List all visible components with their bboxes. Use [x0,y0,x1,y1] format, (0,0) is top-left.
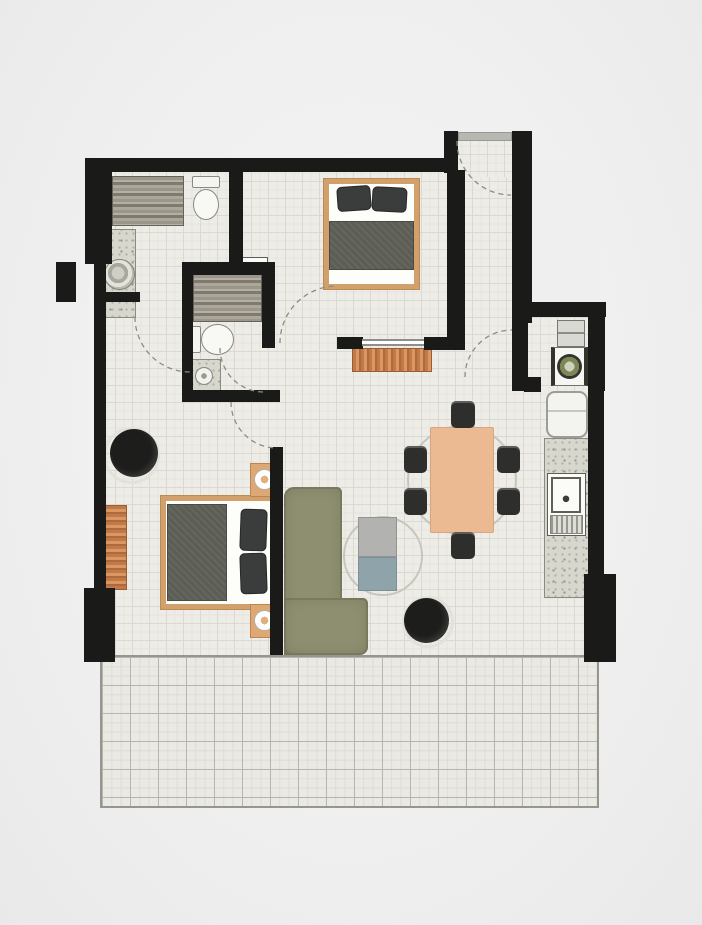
dining-chair-left-1 [404,446,427,473]
bedroom2-dresser [103,505,127,590]
wall-kitchen-right [588,391,604,577]
washing-machine-door [557,354,582,379]
dining-chair-top [451,401,475,428]
fridge [546,391,588,438]
wall-entry-right [512,131,532,323]
wall-top [85,158,452,172]
bathroom1-vanity [112,176,184,226]
wall-bathroom2-top [182,262,272,275]
bathroom2-shower-drain [195,367,213,385]
bathroom2-toilet-bowl [201,324,234,355]
bed2-duvet [167,504,227,601]
coffee-table-bottom [358,557,397,591]
balcony-floor [100,655,599,808]
hallway-runner-rug [352,348,432,372]
utility-shelf [557,320,585,347]
wall-bathroom2-left [182,262,193,402]
wall-entry-left-top [444,131,458,173]
wall-corridor-left [447,170,465,341]
bathroom2-vanity [193,274,262,322]
dining-table [430,427,494,533]
dining-chair-bottom [451,532,475,559]
entry-door-threshold [458,132,512,141]
bathroom1-toilet-tank [192,176,220,188]
pillar-outer-left [56,262,76,302]
wall-bedroom1-bottom-left-cap [337,337,363,349]
sofa-chaise-section [284,598,368,655]
wall-utility-cap [524,377,541,392]
bed1-pillow-right [371,186,407,213]
pillar-bottom-right [584,574,616,662]
wall-bathroom2-bottom [182,390,280,402]
kitchen-sink [551,477,581,513]
bathroom1-toilet-bowl [193,189,219,220]
bed1-duvet [329,221,414,270]
notch-cover [531,160,600,306]
wall-bathroom1-half [100,292,140,302]
pouf [404,598,449,643]
coffee-table-top [358,517,397,557]
bed2-pillow-top [239,509,267,552]
kitchen-drainer [550,515,583,534]
bed1-pillow-left [336,185,372,212]
wall-left-lower [94,262,106,592]
wall-bedroom1-bottom-right [424,337,465,350]
dining-chair-right-1 [497,446,520,473]
bed2-pillow-bottom [239,553,267,595]
dining-chair-left-2 [404,488,427,515]
apartment-floor-plan [0,0,702,925]
dining-chair-right-2 [497,488,520,515]
wall-bathroom2-right [262,262,275,348]
wall-utility-right [588,302,605,391]
bedroom1-window-strip [362,339,424,346]
wall-living-left [270,447,283,655]
bedroom2-chair [110,429,158,477]
wall-left-upper [85,158,112,264]
wall-bathroom1-right [229,158,243,270]
pillar-bottom-left [84,588,115,662]
